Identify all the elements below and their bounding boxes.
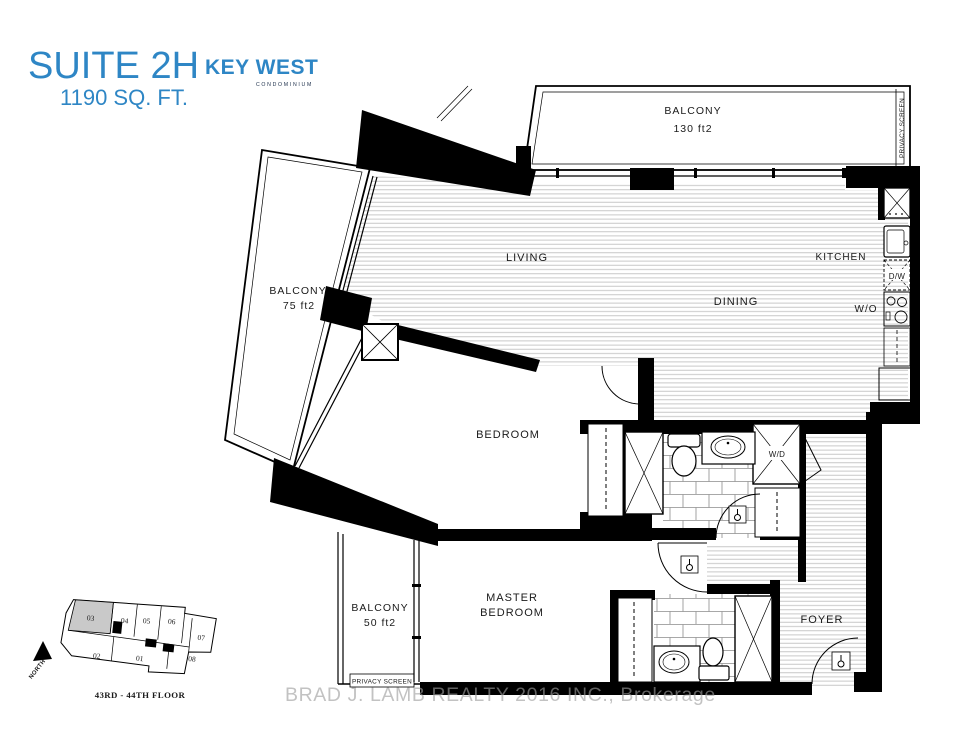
wall-angled-bottomleft [270,458,438,546]
ensuite-faucet [673,658,676,661]
floorplan-page: LIVING DINING KITCHEN W/O D/W W/D BEDROO… [0,0,960,753]
balcony-top-label: BALCONY [664,105,721,117]
logo-tagline: CONDOMINIUM [256,82,313,88]
keyplan-unit-label-03: 03 [86,613,95,623]
fridge-vent-dot [901,213,903,215]
kitchen-sink [884,226,910,257]
ensuite-toilet-tank [699,666,729,680]
label-dishwasher: D/W [889,272,906,281]
balcony-top-outline [524,86,910,170]
wall-kitchen-top [846,166,920,188]
door-symbol-bathroom [729,506,746,523]
logo-keywest: KEY WEST [205,56,318,79]
keyplan-unit-label-06: 06 [168,617,177,627]
privacy-screen-top-label: PRIVACY SCREEN [899,98,906,158]
balcony-left-area: 75 ft2 [283,300,315,312]
wall-stub [516,146,531,175]
balcony-bottom-area: 50 ft2 [364,617,396,629]
balcony-left-label: BALCONY [269,285,326,297]
roof-edge-line-a [437,86,468,118]
bedroom-window-b [299,336,368,468]
brokerage-watermark: BRAD J. LAMB REALTY 2016 INC., Brokerage [285,684,716,706]
room-label-foyer: FOYER [801,614,844,626]
north-arrow-icon [33,641,52,661]
keyplan-unit-label-02: 02 [93,651,102,661]
window-mullion [412,584,421,587]
suite-area: 1190 SQ. FT. [60,85,188,110]
wall-ensuite-top [707,584,778,594]
room-label-kitchen: KITCHEN [816,252,867,263]
toilet-tank [668,434,700,447]
wall-bathroom-bottom-left [580,528,716,540]
window-mullion [412,636,421,639]
toilet-bowl [672,446,696,476]
suite-title: SUITE 2H [28,45,199,87]
living-dining-kitchen-floor [341,176,908,422]
wall-master-closet-left [610,590,618,688]
window-mullion [556,168,559,178]
sink-faucet [727,442,730,445]
north-label: NORTH [28,659,47,681]
balcony-bottom-label: BALCONY [351,602,408,614]
keyplan-unit-label-07: 07 [197,633,206,643]
wall-pier-window [630,168,674,190]
window-mullion [772,168,775,178]
keyplan-unit-label-05: 05 [142,616,151,626]
room-label-master-1: MASTER [486,592,538,604]
balcony-top-area: 130 ft2 [673,123,712,135]
title-block: SUITE 2H 1190 SQ. FT. KEY WEST CONDOMINI… [28,45,318,110]
room-label-bedroom: BEDROOM [476,429,540,441]
room-label-dining: DINING [714,296,759,308]
keyplan-core [163,643,175,652]
door-symbol-entry [832,652,850,670]
window-mullion [842,168,846,178]
ensuite-toilet-bowl [703,638,723,666]
keyplan-unit-label-04: 04 [120,616,129,626]
vanity-counter [702,432,755,464]
master-closet [618,598,652,682]
room-label-living: LIVING [506,252,548,264]
keyplan-floor-label: 43RD - 44TH FLOOR [95,690,186,700]
balcony-top-inner-line [532,92,904,164]
room-label-master-2: BEDROOM [480,607,544,619]
bedroom-door-swing [602,366,640,404]
keyplan-unit-label-08: 08 [188,654,197,664]
label-washer-dryer: W/D [769,450,785,459]
roof-edge-line-b [441,89,472,121]
door-symbol-ensuite [681,556,698,573]
keyplan-core [145,638,157,647]
label-wall-oven: W/O [855,304,878,315]
keyplan: 03 04 05 06 07 02 01 08 NORTH 43RD - 44T… [28,595,217,700]
wall-foyer-right [866,412,882,690]
fridge-vent-dot [895,213,897,215]
keyplan-unit-label-01: 01 [136,654,145,664]
wall-entry-threshold [854,672,882,692]
floorplan-drawing: LIVING DINING KITCHEN W/O D/W W/D BEDROO… [0,0,960,753]
fridge-vent-dot [889,213,891,215]
window-mullion [694,168,697,178]
